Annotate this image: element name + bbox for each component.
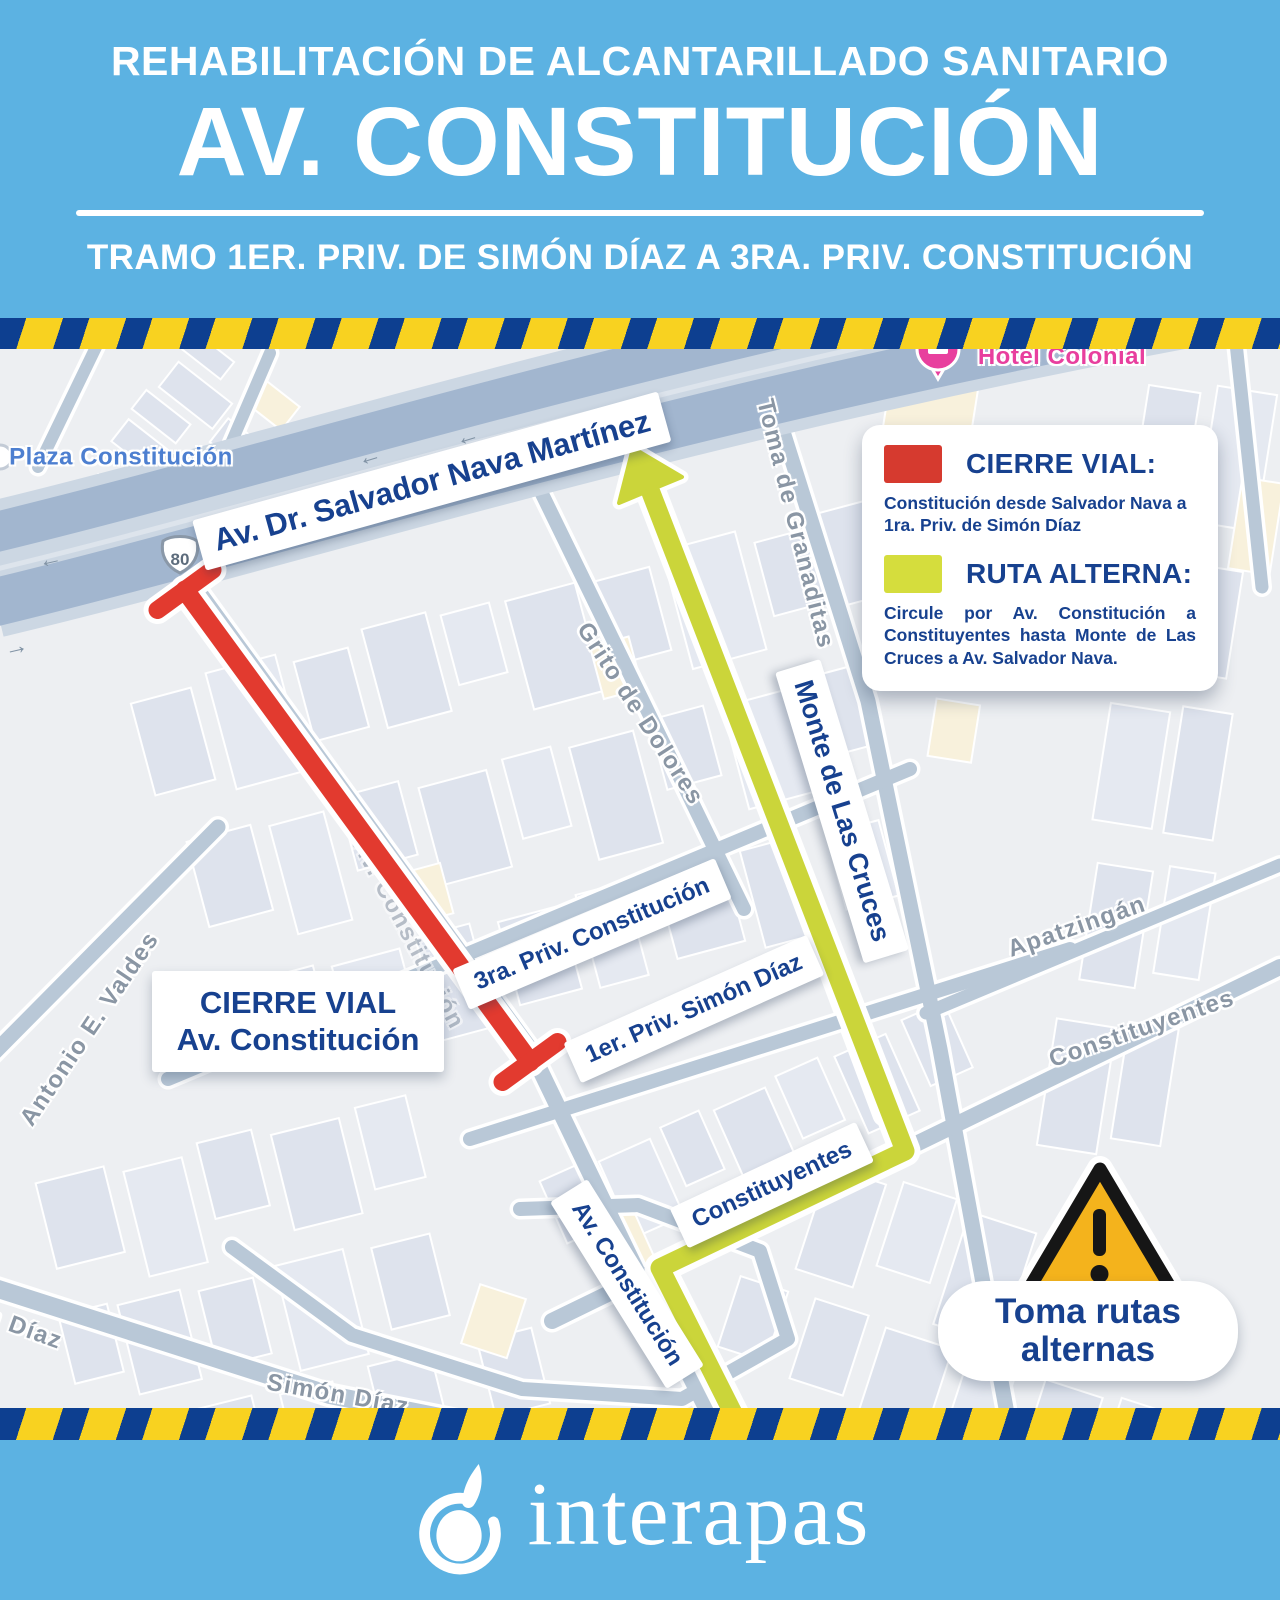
page-title: AV. CONSTITUCIÓN	[0, 93, 1280, 190]
closure-callout-line2: Av. Constitución	[160, 1022, 436, 1059]
alternate-legend-title: RUTA ALTERNA:	[966, 558, 1192, 590]
closure-legend-title: CIERRE VIAL:	[966, 448, 1156, 480]
caution-tape-bottom	[0, 1408, 1280, 1440]
closure-callout: CIERRE VIAL Av. Constitución	[152, 971, 444, 1072]
header-banner: REHABILITACIÓN DE ALCANTARILLADO SANITAR…	[0, 0, 1280, 318]
alternate-color-swatch	[884, 555, 942, 593]
interapas-wordmark: interapas	[528, 1463, 871, 1566]
header-divider	[76, 210, 1204, 216]
interapas-droplet-icon	[410, 1461, 510, 1579]
closure-color-swatch	[884, 445, 942, 483]
header-subtitle: TRAMO 1ER. PRIV. DE SIMÓN DÍAZ A 3RA. PR…	[0, 238, 1280, 278]
warning-line1: Toma rutas	[938, 1293, 1238, 1331]
road-closure-map: ← ← ← → 80 Plaza Constitución Hotel Colo…	[0, 349, 1280, 1408]
alternate-legend-text: Circule por Av. Constitución a Constituy…	[884, 602, 1196, 669]
route-casings	[158, 448, 906, 1408]
warning-callout: Toma rutas alternas	[938, 1281, 1238, 1381]
map-legend: CIERRE VIAL: Constitución desde Salvador…	[862, 425, 1218, 691]
footer-banner: interapas	[0, 1440, 1280, 1600]
caution-tape-top	[0, 318, 1280, 349]
header-kicker: REHABILITACIÓN DE ALCANTARILLADO SANITAR…	[0, 0, 1280, 85]
closure-callout-line1: CIERRE VIAL	[160, 985, 436, 1022]
warning-line2: alternas	[938, 1331, 1238, 1369]
closure-legend-text: Constitución desde Salvador Nava a 1ra. …	[884, 492, 1196, 537]
